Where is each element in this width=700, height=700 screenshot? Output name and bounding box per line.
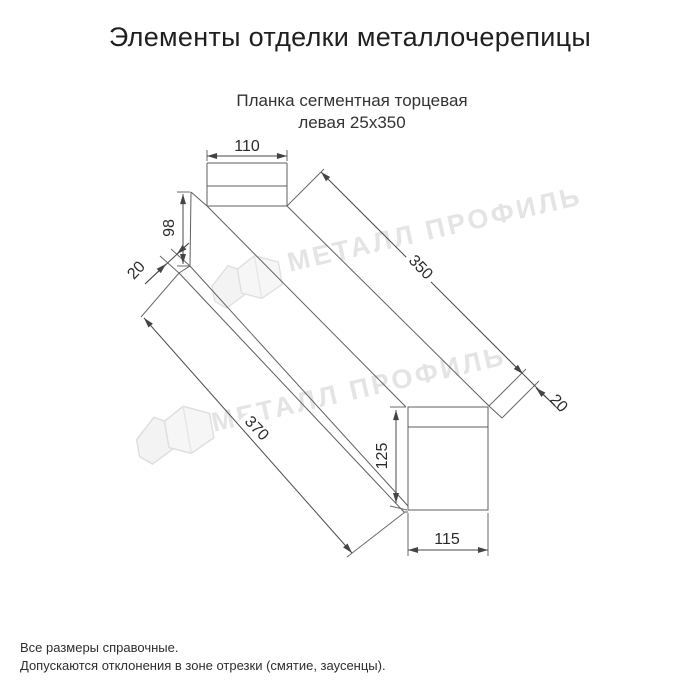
- product-subtitle-line2: левая 25х350: [2, 113, 700, 133]
- footer-note-1: Все размеры справочные.: [20, 640, 178, 655]
- diagram-page: МЕТАЛЛ ПРОФИЛЬ МЕТАЛЛ ПРОФИЛЬ: [0, 0, 700, 700]
- dimension-lines: [144, 156, 560, 553]
- footer-note-2: Допускаются отклонения в зоне отрезки (с…: [20, 658, 386, 673]
- dim-label-right-height: 125: [375, 443, 391, 470]
- product-subtitle-line1: Планка сегментная торцевая: [2, 91, 700, 111]
- part-outline: [179, 163, 502, 512]
- extension-lines: [141, 150, 539, 557]
- dim-label-top-width: 110: [234, 139, 260, 155]
- page-title: Элементы отделки металлочерепицы: [0, 22, 700, 53]
- dim-label-left-height: 98: [162, 219, 178, 237]
- dim-label-right-width: 115: [434, 532, 460, 548]
